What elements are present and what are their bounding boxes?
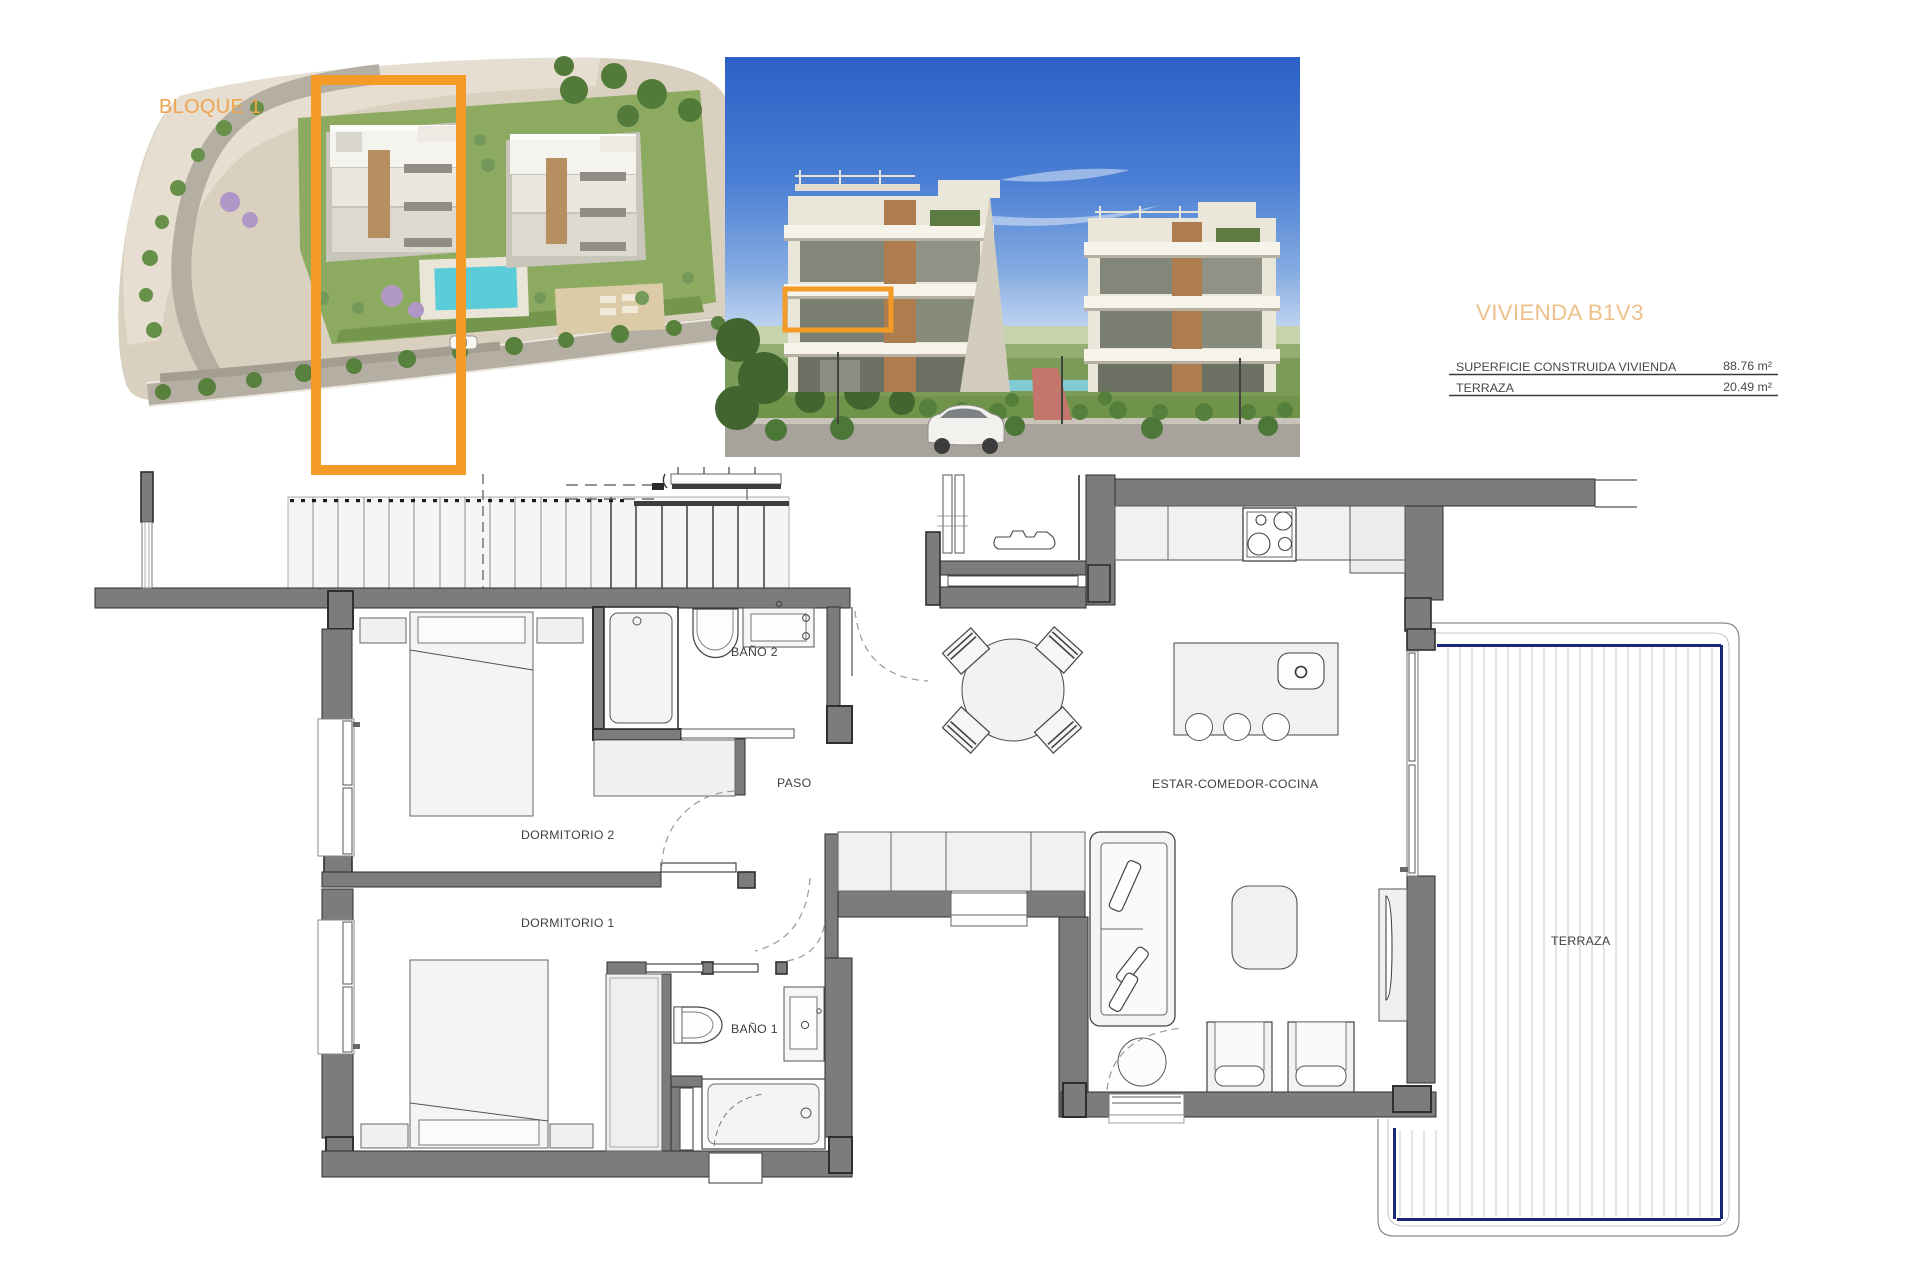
- svg-text:SUPERFICIE CONSTRUIDA VIVIENDA: SUPERFICIE CONSTRUIDA VIVIENDA: [1456, 360, 1677, 374]
- svg-text:DORMITORIO 1: DORMITORIO 1: [521, 916, 615, 930]
- svg-text:ESTAR-COMEDOR-COCINA: ESTAR-COMEDOR-COCINA: [1152, 777, 1319, 791]
- svg-text:PASO: PASO: [777, 776, 811, 790]
- svg-text:BLOQUE 1: BLOQUE 1: [159, 96, 261, 118]
- svg-text:BAÑO 2: BAÑO 2: [731, 645, 778, 659]
- svg-text:88.76 m²: 88.76 m²: [1723, 359, 1772, 373]
- svg-text:DORMITORIO 2: DORMITORIO 2: [521, 828, 615, 842]
- svg-text:TERRAZA: TERRAZA: [1456, 381, 1515, 395]
- svg-text:VIVIENDA B1V3: VIVIENDA B1V3: [1476, 300, 1644, 325]
- svg-text:TERRAZA: TERRAZA: [1551, 934, 1611, 948]
- svg-text:20.49 m²: 20.49 m²: [1723, 380, 1772, 394]
- svg-text:BAÑO 1: BAÑO 1: [731, 1022, 778, 1036]
